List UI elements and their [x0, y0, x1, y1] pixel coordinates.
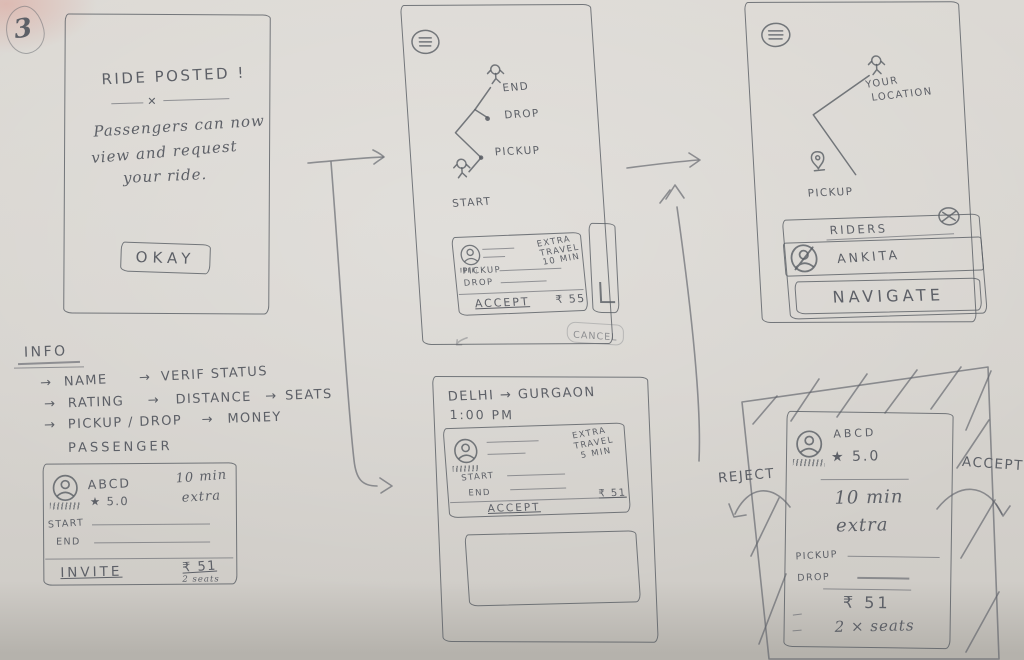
route-title: DELHI → GURGAON [447, 385, 596, 405]
swipe-hint-arrow [456, 338, 467, 345]
arrow-icon: → [201, 412, 214, 427]
accept-button[interactable]: ACCEPT [487, 501, 541, 515]
info-item: MONEY [227, 410, 282, 427]
requester-name: ABCD [833, 426, 876, 441]
info-item: DISTANCE [175, 390, 252, 408]
divider-line [111, 102, 143, 104]
info-title: INFO [24, 343, 68, 361]
passenger-section: PASSENGER ABCD ★ 5.0 10 min extra START … [40, 440, 245, 590]
field-line [94, 542, 210, 544]
drop-field-label: DROP [463, 278, 494, 289]
arrow-icon: → [40, 375, 53, 391]
field-line [499, 268, 561, 271]
avatar-icon [459, 244, 482, 268]
field-line [92, 524, 210, 526]
screen-driver-map: END DROP PICKUP START EXTRA TRAVEL 10 MI… [400, 4, 614, 345]
info-item: VERIF STATUS [160, 364, 268, 385]
price-overline [823, 588, 911, 590]
info-notes: INFO → NAME → VERIF STATUS → RATING → DI… [14, 344, 344, 444]
fare-amount: ₹ 51 [843, 593, 891, 613]
info-underline [18, 361, 80, 365]
extra-time-line2: extra [181, 488, 221, 505]
ride-request-card: EXTRA TRAVEL 5 MIN START END ACCEPT ₹ 51 [443, 423, 631, 519]
field-line [483, 256, 505, 258]
okay-button-label: OKAY [135, 248, 195, 268]
map-label-pickup: PICKUP [494, 145, 541, 159]
fare-amount: ₹ 51 [182, 559, 217, 576]
riders-panel: RIDERS ANKITA NAVIGATE [782, 213, 988, 319]
person-pin-icon [453, 159, 470, 178]
sketch-page: 3 RIDE POSTED ! ✕ Passengers can now vie… [0, 0, 1024, 660]
posted-title: RIDE POSTED ! [101, 64, 246, 89]
arrow-icon: → [148, 393, 161, 408]
posted-body-line1: Passengers can now [93, 112, 266, 141]
rider-row: ANKITA [783, 236, 984, 276]
seats-note: 2 seats [182, 574, 219, 584]
verification-badge-icon [793, 459, 825, 466]
field-line [488, 453, 526, 455]
info-item: SEATS [285, 387, 333, 404]
tick-mark [793, 630, 802, 632]
fare-amount: ₹ 51 [598, 488, 627, 500]
cancel-button[interactable]: CANCEL [567, 321, 624, 346]
start-field-label: START [48, 517, 85, 530]
field-line [510, 487, 566, 490]
rider-avatar-icon [788, 244, 821, 276]
passenger-title: PASSENGER [68, 439, 173, 456]
arrow-icon: → [139, 370, 152, 386]
accept-button[interactable]: ACCEPT [474, 295, 530, 310]
map-pin-icon [811, 152, 824, 171]
passenger-card: ABCD ★ 5.0 10 min extra START END INVITE… [43, 462, 238, 585]
field-line [857, 577, 909, 580]
info-row-3: → PICKUP / DROP → MONEY [44, 410, 282, 433]
arrow-icon: → [265, 389, 278, 404]
passenger-name: ABCD [87, 475, 131, 492]
info-item: RATING [68, 394, 125, 411]
end-field-label: END [56, 536, 81, 547]
map-label-drop: DROP [504, 107, 541, 121]
map-label-end: END [502, 80, 530, 94]
map-label-start: START [452, 196, 493, 210]
field-line [507, 473, 565, 476]
ride-request-card: EXTRA TRAVEL 10 MIN PICKUP DROP ACCEPT ₹… [451, 232, 589, 316]
rider-name: ANKITA [836, 247, 900, 266]
next-card-mark [599, 282, 615, 303]
pickup-field-label: PICKUP [795, 549, 838, 562]
next-card-peek [588, 223, 619, 313]
avatar-icon [795, 430, 823, 460]
verification-badge-icon [452, 465, 478, 472]
empty-card-placeholder [464, 530, 641, 606]
divider-x-icon: ✕ [147, 95, 158, 108]
info-underline [14, 366, 84, 368]
passenger-rating: ★ 5.0 [90, 494, 129, 508]
map-label-pickup: PICKUP [807, 186, 854, 200]
arrow-icon: → [44, 418, 57, 433]
person-pin-icon [487, 65, 504, 84]
arrow-modal-up [660, 185, 699, 461]
field-line [482, 248, 514, 250]
seats-note: 2 × seats [834, 616, 914, 636]
invite-button[interactable]: INVITE [60, 564, 122, 582]
field-line [487, 440, 539, 443]
posted-body-line2: view and request [91, 137, 239, 167]
person-pin-icon [868, 56, 885, 75]
navigate-button-label: NAVIGATE [832, 285, 945, 306]
end-field-label: END [468, 488, 491, 499]
field-line [848, 556, 940, 558]
navigate-button[interactable]: NAVIGATE [794, 278, 982, 315]
reject-swipe-arrow [729, 491, 790, 517]
route-time: 1:00 PM [449, 407, 514, 422]
info-item: NAME [64, 372, 108, 389]
screen-ride-detail: DELHI → GURGAON 1:00 PM EXTRA TRAVEL 5 M… [432, 376, 659, 643]
drop-field-label: DROP [797, 572, 830, 584]
tick-mark [793, 613, 802, 615]
posted-body-line3: your ride. [123, 165, 208, 187]
requester-rating: ★ 5.0 [831, 448, 881, 465]
screen-navigate: YOUR LOCATION PICKUP RIDERS ANKITA NAVIG… [744, 1, 977, 323]
arrow-posted-to-map [308, 150, 384, 164]
card-divider [821, 479, 909, 480]
riders-panel-title: RIDERS [829, 221, 888, 237]
info-row-2: → RATING → DISTANCE → SEATS [44, 387, 333, 412]
divider-line [163, 98, 229, 101]
verification-badge-icon [50, 502, 80, 509]
start-field-label: START [461, 471, 495, 484]
arrow-map-to-navigate [627, 153, 700, 168]
avatar-icon [452, 438, 479, 466]
extra-time-line2: extra [836, 514, 889, 536]
page-number: 3 [4, 6, 46, 56]
incoming-request-card: ABCD ★ 5.0 10 min extra PICKUP DROP ₹ 51… [783, 411, 953, 649]
screen-ride-posted: RIDE POSTED ! ✕ Passengers can now view … [63, 13, 271, 314]
pickup-field-label: PICKUP [462, 265, 502, 277]
avatar-icon [52, 474, 79, 503]
page-number-value: 3 [12, 13, 35, 45]
extra-time-line1: 10 min [175, 468, 228, 487]
field-line [501, 280, 547, 283]
extra-time-line1: 10 min [834, 486, 903, 508]
arrow-icon: → [44, 397, 57, 412]
info-row-1: → NAME → VERIF STATUS [40, 364, 269, 391]
okay-button[interactable]: OKAY [120, 242, 211, 275]
fare-amount: ₹ 55 [555, 292, 586, 306]
cancel-button-label: CANCEL [573, 330, 617, 344]
info-item: PICKUP / DROP [68, 413, 183, 432]
